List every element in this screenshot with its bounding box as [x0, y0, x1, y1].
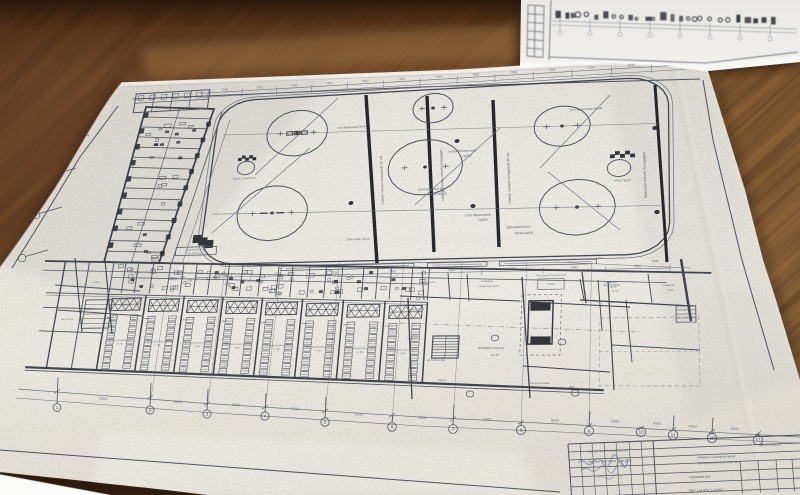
svg-text:Помещение обогревателей: Помещение обогревателей — [536, 274, 567, 278]
svg-text:4: 4 — [264, 414, 267, 419]
svg-text:17.86: 17.86 — [274, 349, 281, 351]
svg-text:13.87: 13.87 — [120, 303, 128, 308]
svg-text:7500: 7500 — [291, 83, 298, 87]
svg-text:17.86: 17.86 — [155, 345, 161, 347]
svg-text:6000: 6000 — [688, 424, 696, 429]
svg-text:ФВУ: ФВУ — [569, 385, 575, 389]
svg-text:Зона разм. 30 см: Зона разм. 30 см — [346, 237, 369, 242]
svg-text:Электрощитовая: Электрощитовая — [528, 381, 550, 385]
svg-text:7500: 7500 — [472, 72, 479, 76]
svg-text:3: 3 — [206, 412, 209, 417]
svg-text:9000: 9000 — [597, 256, 604, 260]
svg-text:8000: 8000 — [418, 416, 426, 420]
svg-text:8000: 8000 — [653, 421, 661, 426]
svg-text:4000: 4000 — [652, 259, 659, 263]
svg-text:7500: 7500 — [570, 266, 578, 270]
svg-text:Компрессорная: Компрессорная — [478, 346, 504, 350]
svg-text:Центральная: Центральная — [506, 225, 530, 230]
svg-text:7500: 7500 — [389, 269, 396, 273]
svg-text:Раздевальня для команд: Раздевальня для команд — [387, 347, 418, 351]
svg-text:Кладовая: Кладовая — [481, 279, 494, 283]
svg-text:17.86: 17.86 — [399, 352, 406, 355]
svg-text:10: 10 — [638, 430, 644, 435]
svg-text:Раздевальня для команд: Раздевальня для команд — [223, 343, 252, 346]
svg-text:7500: 7500 — [627, 63, 635, 67]
svg-text:Вестибюль: Вестибюль — [61, 318, 74, 321]
svg-text:13: 13 — [755, 438, 761, 443]
svg-text:7500: 7500 — [331, 271, 338, 275]
svg-text:7: 7 — [452, 427, 455, 432]
svg-text:11: 11 — [671, 433, 676, 438]
svg-text:Ожидальня: Ожидальня — [421, 280, 436, 284]
svg-text:61.26: 61.26 — [491, 353, 499, 357]
svg-text:Кладовая: Кладовая — [662, 283, 675, 287]
svg-text:7500: 7500 — [435, 74, 442, 78]
svg-text:линия №500: линия №500 — [427, 192, 447, 197]
svg-text:Раздевальня для команд: Раздевальня для команд — [145, 340, 173, 343]
svg-text:8000: 8000 — [731, 427, 739, 431]
svg-text:Вестибюль №3: Вестибюль №3 — [427, 359, 445, 362]
svg-text:Раздевальня для команд: Раздевальня для команд — [304, 346, 334, 349]
svg-text:7500: 7500 — [326, 81, 333, 85]
svg-text:№600: №600 — [478, 218, 488, 222]
svg-text:7500: 7500 — [222, 87, 229, 91]
svg-text:7500: 7500 — [362, 79, 369, 83]
svg-text:Гардероб: Гардероб — [407, 337, 418, 340]
svg-text:17.86: 17.86 — [117, 343, 123, 345]
svg-text:№600: №600 — [462, 154, 471, 158]
svg-text:млн 400 (2 шт): млн 400 (2 шт) — [187, 251, 205, 255]
svg-text:6000: 6000 — [232, 403, 240, 407]
svg-text:17.86: 17.86 — [357, 351, 364, 354]
svg-text:13.55: 13.55 — [667, 289, 674, 292]
svg-text:Игровой зал: Игровой зал — [689, 475, 711, 480]
svg-text:7500: 7500 — [398, 77, 405, 81]
svg-text:6: 6 — [391, 425, 394, 430]
svg-text:Инвентаря 21.02: Инвентаря 21.02 — [479, 285, 499, 288]
svg-text:ЭФ-17-ФКС-2: ЭФ-17-ФКС-2 — [759, 443, 781, 448]
svg-text:21.55: 21.55 — [612, 289, 619, 293]
svg-text:Раздевальня для команд: Раздевальня для команд — [345, 346, 376, 350]
svg-text:Коридор 66.06: Коридор 66.06 — [408, 308, 425, 311]
svg-text:7500: 7500 — [256, 85, 263, 89]
svg-text:Раздевальня для команд: Раздевальня для команд — [106, 340, 134, 342]
svg-text:8: 8 — [520, 428, 523, 433]
svg-text:6000: 6000 — [611, 419, 619, 423]
svg-text:7500: 7500 — [510, 70, 517, 74]
svg-text:8000: 8000 — [291, 407, 299, 412]
svg-text:7500: 7500 — [549, 68, 557, 72]
svg-text:7500: 7500 — [588, 65, 596, 69]
svg-text:9: 9 — [588, 429, 591, 434]
svg-text:8000: 8000 — [551, 418, 559, 422]
svg-text:8000: 8000 — [174, 400, 182, 405]
svg-text:зона катка: зона катка — [515, 231, 535, 236]
svg-text:17.86: 17.86 — [234, 348, 240, 350]
svg-text:Кладовая: Кладовая — [605, 280, 618, 284]
svg-text:АП999: АП999 — [547, 282, 555, 286]
svg-text:Раздевальня для команд: Раздевальня для команд — [183, 341, 212, 344]
svg-text:6000: 6000 — [354, 412, 362, 417]
svg-text:Тамбур: Тамбур — [93, 282, 101, 284]
svg-text:Тамбур: Тамбур — [438, 379, 447, 382]
svg-text:5: 5 — [324, 420, 327, 425]
svg-text:7500: 7500 — [633, 264, 641, 268]
svg-text:6000: 6000 — [99, 397, 107, 401]
svg-text:17.86: 17.86 — [315, 349, 322, 352]
svg-text:Зона судей: Зона судей — [614, 178, 631, 183]
svg-text:2: 2 — [149, 408, 152, 413]
svg-text:20.55: 20.55 — [610, 285, 617, 289]
svg-text:1: 1 — [56, 405, 59, 410]
svg-text:6000: 6000 — [483, 417, 491, 421]
svg-text:17.86: 17.86 — [194, 346, 200, 348]
svg-text:угол Механизма: угол Механизма — [465, 213, 491, 218]
svg-text:Раздевальня для команд: Раздевальня для команд — [263, 344, 293, 347]
svg-text:Коридор 1.06: Коридор 1.06 — [244, 279, 264, 284]
